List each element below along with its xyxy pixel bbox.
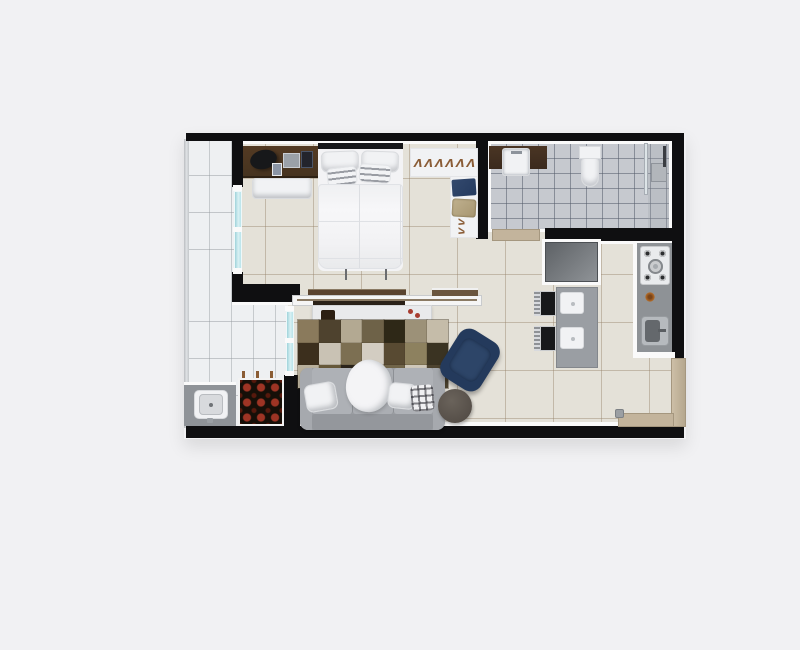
rug-patch <box>427 320 448 343</box>
rug-patch <box>319 320 340 343</box>
entry-door-handle <box>615 409 624 418</box>
rug-patch <box>362 320 383 343</box>
bed-duvet <box>318 184 403 269</box>
burner-small-3 <box>644 274 651 281</box>
half-wall-divider <box>232 284 300 304</box>
folded-jeans <box>451 178 476 197</box>
wall-top <box>186 133 684 141</box>
sink-faucet-icon <box>658 329 666 332</box>
wall-bedroom-left-upper <box>232 139 243 187</box>
glass-door-living-frame-bottom <box>285 371 294 376</box>
plate-bottom <box>560 327 584 349</box>
round-side-table <box>438 389 472 423</box>
burner-small-4 <box>659 274 666 281</box>
bed-striped-pillow-right <box>358 163 391 184</box>
laptop <box>283 153 300 168</box>
rug-patch <box>341 320 362 343</box>
chair-bottom <box>540 326 556 351</box>
plate-mark <box>571 337 575 341</box>
hanger-row-icon: ΛΛΛΛΛΛΛΛ <box>413 158 478 169</box>
bathroom-sink <box>502 148 530 176</box>
laundry-drain <box>209 403 213 407</box>
burner-large-center <box>648 259 663 274</box>
laundry-tub <box>194 390 228 419</box>
laundry-faucet-icon <box>207 418 213 423</box>
sofa-pillow-left <box>303 380 339 413</box>
rug-patch <box>298 343 319 366</box>
glass-door-bedroom-frame-bottom <box>233 268 242 274</box>
bed-foot-leg-left <box>345 269 347 280</box>
orange-utensil <box>645 292 655 302</box>
toilet-bowl <box>581 158 599 187</box>
faucet-icon <box>511 151 522 154</box>
glass-door-living-handle <box>285 338 294 343</box>
rug-patch <box>405 320 426 343</box>
media-shelf <box>432 288 478 296</box>
sideboard-red-decor-2 <box>415 313 420 318</box>
hanger-mini-icon: ΛΛΛ <box>456 217 465 235</box>
refrigerator <box>545 242 598 282</box>
cooktop <box>640 246 670 285</box>
wardrobe-rail: ΛΛΛΛΛΛΛΛ <box>410 148 478 177</box>
bathroom-door <box>492 229 540 241</box>
folded-bag <box>452 198 477 217</box>
glass-door-bedroom-handle <box>233 227 242 232</box>
rug-patch <box>405 343 426 366</box>
chair-top <box>540 291 556 316</box>
plate-mark <box>571 302 575 306</box>
rug-patch <box>384 343 405 366</box>
burner-small-2 <box>659 250 666 257</box>
sofa-plaid-pillow <box>410 384 435 412</box>
floor-plan-canvas: ΛΛΛΛΛΛΛΛ ΛΛΛ <box>0 0 800 650</box>
sideboard-red-decor-1 <box>408 309 413 314</box>
rug-patch <box>298 320 319 343</box>
rug-patch <box>384 320 405 343</box>
bedroom-bench <box>252 178 312 199</box>
balcony-floor-upper <box>188 139 238 289</box>
sofa-backrest <box>312 414 433 430</box>
plate-top <box>560 292 584 314</box>
shower-pipe <box>663 146 666 167</box>
phone <box>272 163 282 176</box>
entry-door-leaf <box>618 413 674 427</box>
shower-glass-partition <box>644 143 648 195</box>
kitchen-sink <box>641 316 669 346</box>
vertical-garden <box>238 378 284 426</box>
burner-small-1 <box>644 250 651 257</box>
trim-halfwall-bottom <box>232 302 294 305</box>
rug-patch <box>319 343 340 366</box>
bed-foot-leg-right <box>385 269 387 280</box>
counter-end-trim <box>633 352 675 358</box>
picture-frame <box>301 151 313 168</box>
